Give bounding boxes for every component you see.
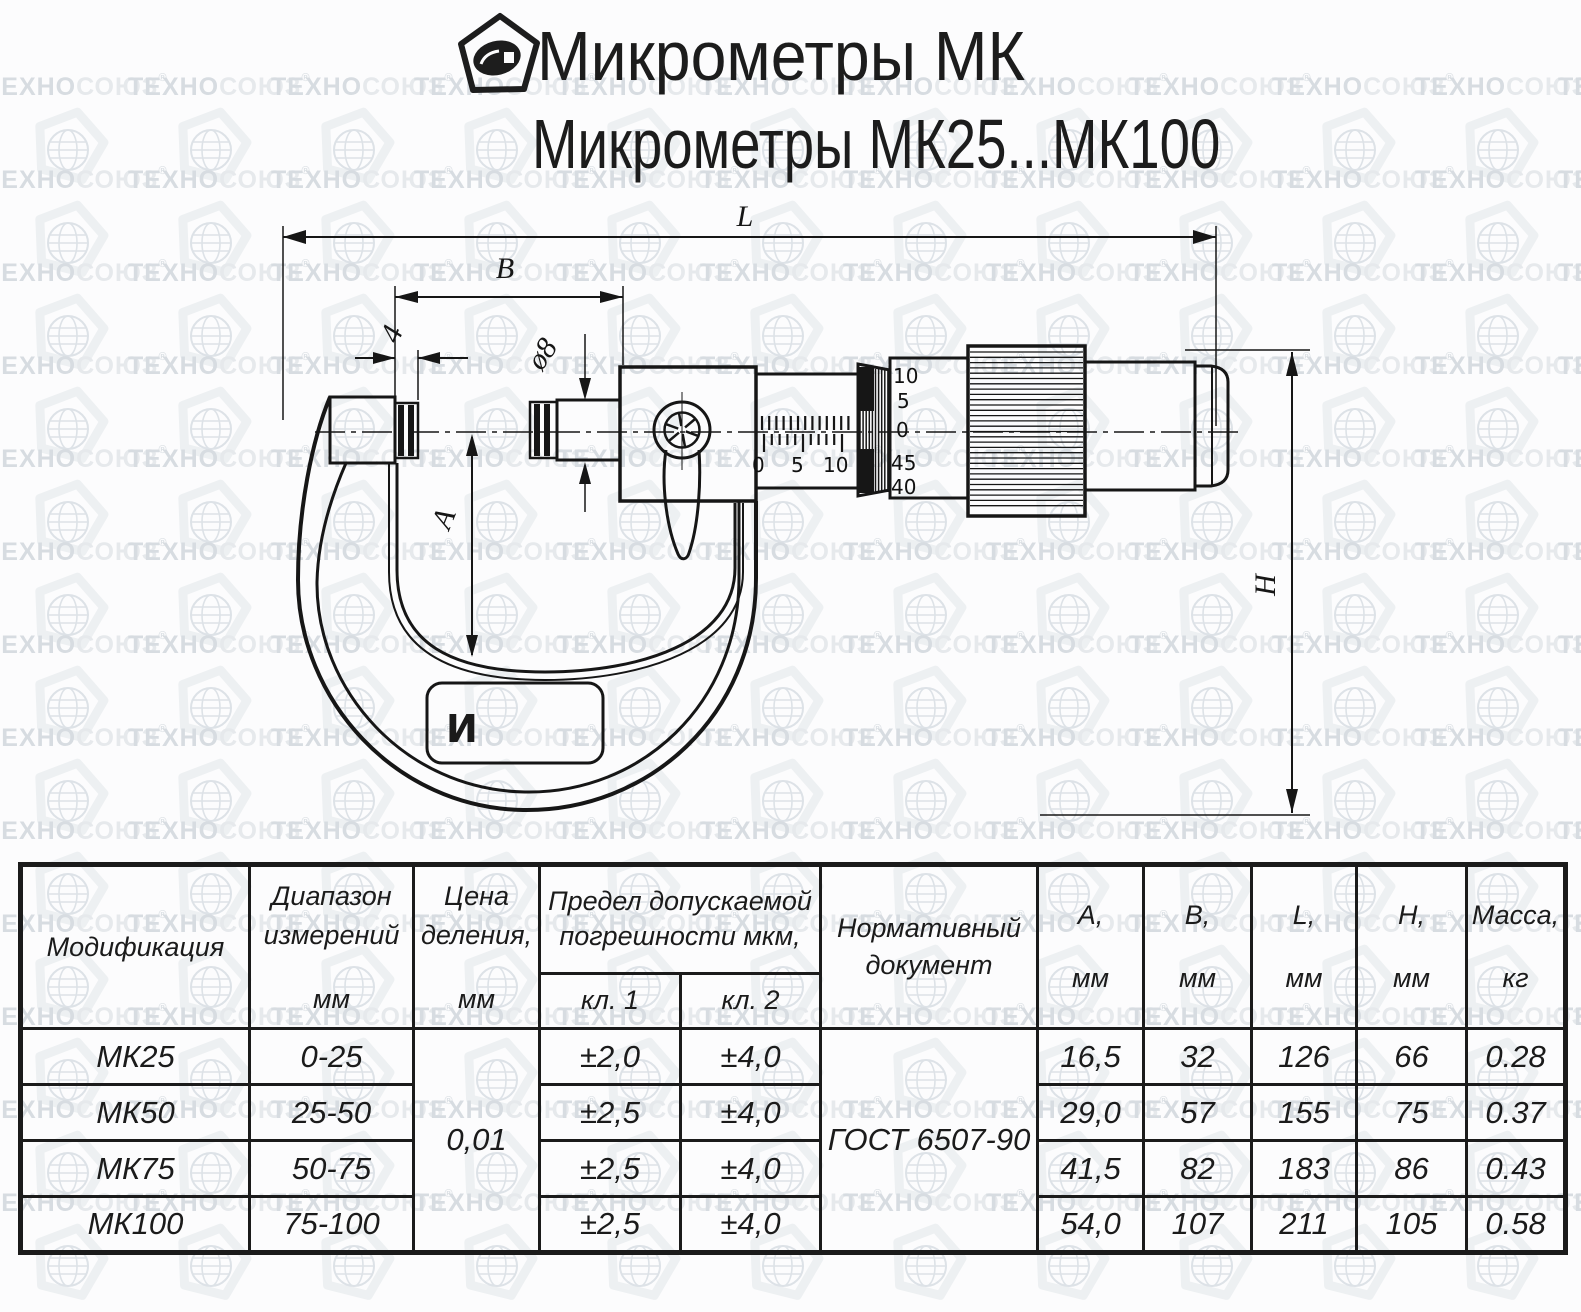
- thimble-scale-0: 0: [896, 418, 909, 442]
- cell-class2: ±4,0: [681, 1029, 821, 1085]
- spindle-body: [557, 400, 620, 460]
- dim-label-A: A: [424, 503, 462, 535]
- dim-label-L: L: [736, 200, 754, 233]
- cell-range: 0-25: [250, 1029, 414, 1085]
- datasheet-page: { "watermark": { "text_primary": "ТЕХНО"…: [0, 0, 1581, 1270]
- col-header-modification: Модификация: [21, 865, 250, 1029]
- thimble-scale-10: 10: [893, 364, 918, 388]
- barrel: [1085, 362, 1195, 490]
- cell-b: 32: [1144, 1029, 1252, 1085]
- cell-range: 25-50: [250, 1085, 414, 1141]
- cell-h: 66: [1357, 1029, 1467, 1085]
- cell-l: 183: [1252, 1141, 1357, 1197]
- cell-b: 57: [1144, 1085, 1252, 1141]
- cell-class1: ±2,5: [540, 1197, 681, 1253]
- brand-pentagon-icon: [461, 16, 537, 90]
- name-plate-logo: И: [446, 707, 478, 751]
- cell-a: 41,5: [1038, 1141, 1144, 1197]
- cell-model: МК25: [21, 1029, 250, 1085]
- col-header-division: Цена деления, мм: [414, 865, 540, 1029]
- lock-body: [620, 367, 756, 501]
- col-header-h: Н, мм: [1357, 865, 1467, 1029]
- cell-mass: 0.28: [1467, 1029, 1566, 1085]
- cell-b: 107: [1144, 1197, 1252, 1253]
- table-row-mk100: МК100 75-100 ±2,5 ±4,0 54,0 107 211 105 …: [21, 1197, 1566, 1253]
- col-header-class1: кл. 1: [540, 973, 681, 1028]
- cell-mass: 0.37: [1467, 1085, 1566, 1141]
- cell-class1: ±2,0: [540, 1029, 681, 1085]
- anvil-mount: [330, 397, 395, 463]
- cell-h: 75: [1357, 1085, 1467, 1141]
- cell-h: 105: [1357, 1197, 1467, 1253]
- frame-opening-fillet: [389, 463, 743, 680]
- cell-b: 82: [1144, 1141, 1252, 1197]
- cell-h: 86: [1357, 1141, 1467, 1197]
- cell-model: МК50: [21, 1085, 250, 1141]
- table-row-mk50: МК50 25-50 ±2,5 ±4,0 29,0 57 155 75 0.37: [21, 1085, 1566, 1141]
- frame-opening-edge: [397, 463, 735, 672]
- page-subtitle: Микрометры МК25...МК100: [532, 109, 1220, 179]
- col-header-range: Диапазон измерений мм: [250, 865, 414, 1029]
- cell-range: 75-100: [250, 1197, 414, 1253]
- sleeve-ticks-lower: [764, 434, 842, 452]
- cell-mass: 0.58: [1467, 1197, 1566, 1253]
- cell-a: 29,0: [1038, 1085, 1144, 1141]
- knurl-lines: [970, 352, 1083, 506]
- col-header-b: В, мм: [1144, 865, 1252, 1029]
- cell-l: 126: [1252, 1029, 1357, 1085]
- cell-class1: ±2,5: [540, 1141, 681, 1197]
- col-header-mass: Масса, кг: [1467, 865, 1566, 1029]
- cell-mass: 0.43: [1467, 1141, 1566, 1197]
- thimble-scale-5: 5: [897, 389, 910, 413]
- sleeve-scale-10: 10: [823, 453, 848, 477]
- cell-class2: ±4,0: [681, 1141, 821, 1197]
- micrometer-outline: [298, 346, 1240, 810]
- cell-model: МК75: [21, 1141, 250, 1197]
- cell-model: МК100: [21, 1197, 250, 1253]
- cell-a: 16,5: [1038, 1029, 1144, 1085]
- cell-class2: ±4,0: [681, 1197, 821, 1253]
- cell-range: 50-75: [250, 1141, 414, 1197]
- dim-label-B: B: [496, 252, 514, 285]
- dim-label-4: 4: [374, 321, 410, 347]
- table-row-mk25: МК25 0-25 0,01 ±2,0 ±4,0 ГОСТ 6507-90 16…: [21, 1029, 1566, 1085]
- col-header-class2: кл. 2: [681, 973, 821, 1028]
- thimble-scale-45: 45: [891, 451, 916, 475]
- page-title: Микрометры МК: [537, 21, 1025, 91]
- sleeve-scale-0: 0: [752, 453, 765, 477]
- table-row-mk75: МК75 50-75 ±2,5 ±4,0 41,5 82 183 86 0.43: [21, 1141, 1566, 1197]
- dim-label-d8: ø8: [519, 332, 564, 376]
- sleeve-ticks-upper: [762, 416, 848, 430]
- col-header-l: L, мм: [1252, 865, 1357, 1029]
- col-header-document: Нормативный документ: [821, 865, 1038, 1029]
- sleeve-scale-5: 5: [791, 453, 804, 477]
- cell-class2: ±4,0: [681, 1085, 821, 1141]
- cell-division-value: 0,01: [414, 1029, 540, 1253]
- thimble-scale-40: 40: [891, 475, 916, 499]
- cell-l: 211: [1252, 1197, 1357, 1253]
- cell-a: 54,0: [1038, 1197, 1144, 1253]
- cell-class1: ±2,5: [540, 1085, 681, 1141]
- col-header-a: А, мм: [1038, 865, 1144, 1029]
- cell-document-value: ГОСТ 6507-90: [821, 1029, 1038, 1253]
- spec-table: Модификация Диапазон измерений мм Цена д…: [18, 862, 1568, 1255]
- dim-label-H: H: [1249, 572, 1282, 597]
- cell-l: 155: [1252, 1085, 1357, 1141]
- frame-inner-contour: [317, 463, 739, 792]
- col-header-error-limit: Предел допускаемой погрешности мкм,: [540, 865, 821, 974]
